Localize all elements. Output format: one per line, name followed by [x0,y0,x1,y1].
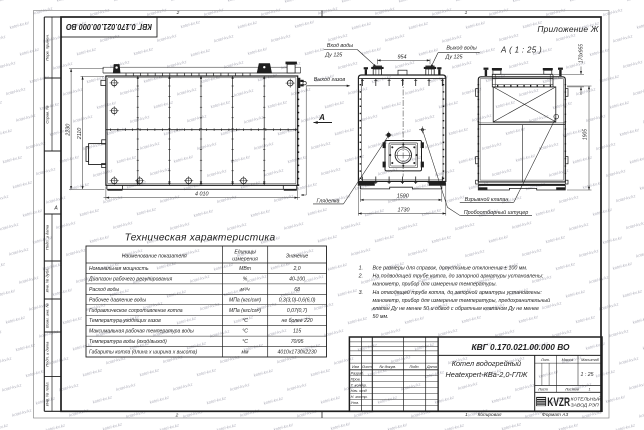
svg-text:kotel-kv.kz: kotel-kv.kz [575,86,596,96]
svg-text:kotel-kv.kz: kotel-kv.kz [545,234,566,244]
svg-text:kotel-kv.kz: kotel-kv.kz [612,33,633,43]
svg-text:kotel-kv.kz: kotel-kv.kz [407,247,428,257]
svg-text:измерения: измерения [232,257,258,263]
svg-text:kotel-kv.kz: kotel-kv.kz [441,34,462,44]
svg-text:kotel-kv.kz: kotel-kv.kz [612,261,633,271]
svg-text:1 : 25: 1 : 25 [581,372,594,378]
svg-text:kotel-kv.kz: kotel-kv.kz [341,0,362,4]
svg-text:kotel-kv.kz: kotel-kv.kz [189,273,210,283]
svg-text:kotel-kv.kz: kotel-kv.kz [45,422,66,430]
svg-text:°С: °С [242,318,248,324]
svg-text:kotel-kv.kz: kotel-kv.kz [0,0,20,2]
svg-text:kotel-kv.kz: kotel-kv.kz [585,341,606,351]
svg-text:kotel-kv.kz: kotel-kv.kz [0,127,13,137]
svg-text:kotel-kv.kz: kotel-kv.kz [52,287,73,297]
svg-text:kotel-kv.kz: kotel-kv.kz [172,381,193,391]
svg-text:kotel-kv.kz: kotel-kv.kz [491,394,512,404]
svg-text:kotel-kv.kz: kotel-kv.kz [139,140,160,150]
svg-text:kotel-kv.kz: kotel-kv.kz [629,154,644,164]
svg-text:kotel-kv.kz: kotel-kv.kz [209,328,230,338]
svg-text:kotel-kv.kz: kotel-kv.kz [605,394,626,404]
svg-text:Номинальная мощность: Номинальная мощность [89,266,149,272]
svg-text:kotel-kv.kz: kotel-kv.kz [602,235,623,245]
svg-text:Утв.: Утв. [351,401,360,405]
svg-text:kotel-kv.kz: kotel-kv.kz [454,221,475,231]
svg-text:kotel-kv.kz: kotel-kv.kz [163,126,184,136]
svg-text:1: 1 [465,10,468,16]
svg-text:Нач. отд: Нач. отд [351,389,367,393]
svg-text:kotel-kv.kz: kotel-kv.kz [501,421,522,430]
svg-text:kotel-kv.kz: kotel-kv.kz [589,47,610,57]
svg-text:Выход газов: Выход газов [314,77,346,83]
svg-text:Подп. и дата: Подп. и дата [45,341,50,367]
svg-text:kotel-kv.kz: kotel-kv.kz [495,99,516,109]
svg-text:kotel-kv.kz: kotel-kv.kz [92,168,113,178]
svg-text:Гляделка: Гляделка [317,198,340,204]
svg-text:kotel-kv.kz: kotel-kv.kz [0,355,13,365]
svg-text:Дата: Дата [426,365,437,369]
svg-text:kotel-kv.kz: kotel-kv.kz [437,327,458,337]
svg-text:МПа (кгс/см²): МПа (кгс/см²) [229,297,261,303]
svg-text:kotel-kv.kz: kotel-kv.kz [575,314,596,324]
svg-text:Габариты котла (длина х ширина: Габариты котла (длина х ширина х высота) [89,350,197,356]
svg-text:kotel-kv.kz: kotel-kv.kz [0,34,7,44]
svg-text:kotel-kv.kz: kotel-kv.kz [327,32,348,42]
svg-text:°С: °С [242,329,248,335]
svg-text:МПа (кгс/см²): МПа (кгс/см²) [229,308,261,314]
svg-text:kotel-kv.kz: kotel-kv.kz [511,220,532,230]
svg-text:kotel-kv.kz: kotel-kv.kz [92,394,113,404]
svg-text:kotel-kv.kz: kotel-kv.kz [639,181,644,191]
svg-text:kotel-kv.kz: kotel-kv.kz [99,33,120,43]
svg-text:kotel-kv.kz: kotel-kv.kz [337,287,358,297]
svg-text:kotel-kv.kz: kotel-kv.kz [599,73,620,83]
svg-text:Максимальная рабочая температу: Максимальная рабочая температура воды [89,329,194,335]
svg-text:kotel-kv.kz: kotel-kv.kz [545,7,566,17]
svg-text:kotel-kv.kz: kotel-kv.kz [146,7,167,17]
svg-text:Т. контр.: Т. контр. [351,383,367,387]
svg-text:Листов: Листов [564,388,579,392]
svg-text:1590: 1590 [397,194,409,200]
svg-text:Перв. примен.: Перв. примен. [45,34,50,61]
svg-text:1730: 1730 [398,207,410,213]
svg-text:Н. контр.: Н. контр. [351,395,368,399]
svg-text:kotel-kv.kz: kotel-kv.kz [250,208,271,218]
svg-text:kotel-kv.kz: kotel-kv.kz [414,113,435,123]
svg-text:kotel-kv.kz: kotel-kv.kz [310,140,331,150]
svg-text:kotel-kv.kz: kotel-kv.kz [176,86,197,96]
svg-text:kotel-kv.kz: kotel-kv.kz [418,47,439,57]
svg-text:kotel-kv.kz: kotel-kv.kz [176,315,197,325]
svg-text:kotel-kv.kz: kotel-kv.kz [39,101,60,111]
svg-text:Расход воды: Расход воды [89,287,119,293]
svg-text:kotel-kv.kz: kotel-kv.kz [156,260,177,270]
svg-text:kotel-kv.kz: kotel-kv.kz [193,208,214,218]
svg-text:kotel-kv.kz: kotel-kv.kz [226,221,247,231]
svg-text:мм: мм [242,350,249,356]
svg-text:kotel-kv.kz: kotel-kv.kz [22,208,43,218]
svg-text:kotel-kv.kz: kotel-kv.kz [284,0,305,4]
svg-text:kotel-kv.kz: kotel-kv.kz [327,262,348,272]
svg-text:kotel-kv.kz: kotel-kv.kz [62,315,83,325]
svg-text:kotel-kv.kz: kotel-kv.kz [408,20,429,30]
svg-text:kotel-kv.kz: kotel-kv.kz [350,247,371,257]
svg-text:Лит.: Лит. [540,358,550,362]
svg-text:kotel-kv.kz: kotel-kv.kz [143,74,164,84]
svg-text:kotel-kv.kz: kotel-kv.kz [186,113,207,123]
svg-text:Котел водогрейный: Котел водогрейный [452,359,521,368]
svg-text:kotel-kv.kz: kotel-kv.kz [0,422,9,430]
svg-text:kotel-kv.kz: kotel-kv.kz [387,422,408,430]
svg-text:kotel-kv.kz: kotel-kv.kz [12,179,33,189]
svg-text:kotel-kv.kz: kotel-kv.kz [243,114,264,124]
svg-text:kotel-kv.kz: kotel-kv.kz [397,221,418,231]
svg-text:kotel-kv.kz: kotel-kv.kz [361,46,382,56]
svg-text:Выход воды: Выход воды [446,46,476,52]
svg-text:kotel-kv.kz: kotel-kv.kz [471,112,492,122]
svg-text:kotel-kv.kz: kotel-kv.kz [115,382,136,392]
svg-text:Гидравлическое сопротивление к: Гидравлическое сопротивление котла [89,308,183,314]
svg-text:КОТЕЛЬНЫЙ: КОТЕЛЬНЫЙ [571,394,602,402]
svg-text:kotel-kv.kz: kotel-kv.kz [548,167,569,177]
svg-text:kotel-kv.kz: kotel-kv.kz [276,354,297,364]
svg-text:70/95: 70/95 [291,339,304,345]
svg-text:kotel-kv.kz: kotel-kv.kz [512,0,533,3]
svg-text:1905: 1905 [583,129,589,140]
svg-text:kotel-kv.kz: kotel-kv.kz [0,99,3,109]
svg-text:kotel-kv.kz: kotel-kv.kz [76,46,97,56]
svg-text:kotel-kv.kz: kotel-kv.kz [257,72,278,82]
svg-text:kotel-kv.kz: kotel-kv.kz [25,368,46,378]
svg-text:kotel-kv.kz: kotel-kv.kz [263,395,284,405]
svg-text:kotel-kv.kz: kotel-kv.kz [518,87,539,97]
svg-text:kotel-kv.kz: kotel-kv.kz [72,113,93,123]
svg-text:kotel-kv.kz: kotel-kv.kz [595,141,616,151]
svg-text:kotel-kv.kz: kotel-kv.kz [273,193,294,203]
svg-text:kotel-kv.kz: kotel-kv.kz [294,19,315,29]
svg-text:kotel-kv.kz: kotel-kv.kz [438,99,459,109]
svg-text:kotel-kv.kz: kotel-kv.kz [622,288,643,298]
svg-text:kotel-kv.kz: kotel-kv.kz [297,181,318,191]
svg-text:kotel-kv.kz: kotel-kv.kz [638,409,644,419]
svg-text:Формат А3: Формат А3 [542,412,569,418]
svg-text:kotel-kv.kz: kotel-kv.kz [488,7,509,17]
svg-text:Масштаб: Масштаб [581,358,600,362]
svg-text:kotel-kv.kz: kotel-kv.kz [307,206,328,216]
svg-text:kotel-kv.kz: kotel-kv.kz [595,368,616,378]
svg-text:115: 115 [293,329,301,335]
svg-text:kotel-kv.kz: kotel-kv.kz [246,273,267,283]
svg-text:kotel-kv.kz: kotel-kv.kz [333,355,354,365]
svg-text:2: 2 [176,10,180,16]
svg-text:kotel-kv.kz: kotel-kv.kz [334,126,355,136]
svg-text:манометр, прибор для измерения: манометр, прибор для измерения температу… [373,282,497,288]
svg-text:kotel-kv.kz: kotel-kv.kz [552,100,573,110]
svg-text:kotel-kv.kz: kotel-kv.kz [196,141,217,151]
svg-text:kotel-kv.kz: kotel-kv.kz [625,220,644,230]
svg-text:kotel-kv.kz: kotel-kv.kz [29,74,50,84]
svg-text:KVZR: KVZR [547,396,570,409]
svg-text:kotel-kv.kz: kotel-kv.kz [267,99,288,109]
svg-text:kotel-kv.kz: kotel-kv.kz [239,408,260,418]
svg-text:kotel-kv.kz: kotel-kv.kz [0,288,16,298]
svg-text:kotel-kv.kz: kotel-kv.kz [498,32,519,42]
svg-text:kotel-kv.kz: kotel-kv.kz [431,6,452,16]
svg-text:kotel-kv.kz: kotel-kv.kz [374,233,395,243]
svg-text:1: 1 [588,388,590,392]
svg-text:40-100: 40-100 [289,276,305,282]
svg-text:kotel-kv.kz: kotel-kv.kz [353,408,374,418]
svg-text:kotel-kv.kz: kotel-kv.kz [18,275,39,285]
svg-text:68: 68 [294,287,300,293]
svg-text:kotel-kv.kz: kotel-kv.kz [330,421,351,430]
svg-text:kotel-kv.kz: kotel-kv.kz [455,0,476,2]
svg-text:Взрывной клапан: Взрывной клапан [465,196,509,203]
svg-text:kotel-kv.kz: kotel-kv.kz [240,180,261,190]
svg-text:kotel-kv.kz: kotel-kv.kz [25,140,46,150]
svg-text:kotel-kv.kz: kotel-kv.kz [230,154,251,164]
svg-text:kotel-kv.kz: kotel-kv.kz [558,194,579,204]
svg-text:kotel-kv.kz: kotel-kv.kz [2,154,23,164]
svg-text:kotel-kv.kz: kotel-kv.kz [404,86,425,96]
svg-text:kotel-kv.kz: kotel-kv.kz [458,154,479,164]
svg-text:kotel-kv.kz: kotel-kv.kz [632,86,644,96]
svg-text:1.: 1. [359,265,363,271]
svg-text:kotel-kv.kz: kotel-kv.kz [116,154,137,164]
svg-text:kotel-kv.kz: kotel-kv.kz [569,0,590,3]
svg-text:kotel-kv.kz: kotel-kv.kz [283,221,304,231]
svg-text:Пробоотборный штуцер: Пробоотборный штуцер [464,209,529,216]
svg-text:kotel-kv.kz: kotel-kv.kz [173,154,194,164]
svg-text:kotel-kv.kz: kotel-kv.kz [206,395,227,405]
svg-text:МВт: МВт [239,266,251,272]
svg-text:kotel-kv.kz: kotel-kv.kz [636,20,644,30]
svg-text:4 010: 4 010 [195,192,209,198]
svg-text:kotel-kv.kz: kotel-kv.kz [196,367,217,377]
svg-text:kotel-kv.kz: kotel-kv.kz [170,0,191,2]
svg-text:kotel-kv.kz: kotel-kv.kz [568,221,589,231]
svg-text:Все размеры для справок, допус: Все размеры для справок, допустимые откл… [373,265,528,271]
svg-text:kotel-kv.kz: kotel-kv.kz [632,315,644,325]
svg-text:kotel-kv.kz: kotel-kv.kz [35,166,56,176]
svg-text:Справ. №: Справ. № [45,105,50,124]
svg-text:Лист: Лист [537,388,548,392]
svg-text:kotel-kv.kz: kotel-kv.kz [260,7,281,17]
svg-text:kotel-kv.kz: kotel-kv.kz [206,168,227,178]
svg-text:Подп. и дата: Подп. и дата [45,224,50,250]
svg-text:kotel-kv.kz: kotel-kv.kz [572,154,593,164]
svg-text:%: % [243,276,248,282]
svg-text:Техническая характеристика: Техническая характеристика [125,233,276,244]
svg-text:kotel-kv.kz: kotel-kv.kz [465,20,486,30]
svg-text:954: 954 [398,55,407,61]
svg-text:kotel-kv.kz: kotel-kv.kz [313,301,334,311]
svg-text:kotel-kv.kz: kotel-kv.kz [381,100,402,110]
svg-text:kotel-kv.kz: kotel-kv.kz [216,194,237,204]
svg-text:kotel-kv.kz: kotel-kv.kz [588,274,609,284]
svg-text:kotel-kv.kz: kotel-kv.kz [129,114,150,124]
svg-text:kotel-kv.kz: kotel-kv.kz [619,127,640,137]
svg-text:kotel-kv.kz: kotel-kv.kz [113,0,134,2]
svg-text:kotel-kv.kz: kotel-kv.kz [410,409,431,419]
svg-text:kotel-kv.kz: kotel-kv.kz [286,382,307,392]
svg-text:2110: 2110 [77,128,83,141]
svg-text:kotel-kv.kz: kotel-kv.kz [320,394,341,404]
svg-text:kotel-kv.kz: kotel-kv.kz [347,315,368,325]
svg-text:kotel-kv.kz: kotel-kv.kz [464,248,485,258]
svg-text:kotel-kv.kz: kotel-kv.kz [394,59,415,69]
svg-text:kotel-kv.kz: kotel-kv.kz [296,408,317,418]
svg-text:kotel-kv.kz: kotel-kv.kz [628,380,644,390]
svg-text:kotel-kv.kz: kotel-kv.kz [304,46,325,56]
svg-text:2: 2 [175,413,179,419]
svg-text:0,3(3,0)-0,6(6,0): 0,3(3,0)-0,6(6,0) [279,297,316,303]
svg-text:Значение: Значение [286,254,309,260]
svg-text:kotel-kv.kz: kotel-kv.kz [1,382,22,392]
svg-text:kotel-kv.kz: kotel-kv.kz [270,261,291,271]
svg-text:kotel-kv.kz: kotel-kv.kz [263,167,284,177]
svg-text:ЗАВОД РЭП: ЗАВОД РЭП [571,402,600,408]
svg-text:kotel-kv.kz: kotel-kv.kz [180,19,201,29]
svg-text:2230: 2230 [65,124,71,137]
svg-text:А: А [53,206,58,212]
svg-text:На отводящей трубе котла, до з: На отводящей трубе котла, до запорной ар… [373,289,543,296]
svg-text:Разраб.: Разраб. [351,371,365,375]
svg-text:kotel-kv.kz: kotel-kv.kz [199,301,220,311]
svg-text:Масса: Масса [562,358,573,362]
svg-text:kotel-kv.kz: kotel-kv.kz [156,33,177,43]
svg-text:Приложение Ж: Приложение Ж [537,24,599,34]
svg-text:Подп.: Подп. [409,365,419,369]
svg-text:kotel-kv.kz: kotel-kv.kz [102,421,123,430]
svg-text:kotel-kv.kz: kotel-kv.kz [558,422,579,430]
svg-text:kotel-kv.kz: kotel-kv.kz [364,207,385,217]
svg-text:Копировал: Копировал [478,412,502,418]
svg-text:kotel-kv.kz: kotel-kv.kz [55,220,76,230]
svg-text:kotel-kv.kz: kotel-kv.kz [555,261,576,271]
svg-text:kotel-kv.kz: kotel-kv.kz [317,233,338,243]
svg-text:kotel-kv.kz: kotel-kv.kz [79,207,100,217]
svg-text:kotel-kv.kz: kotel-kv.kz [69,181,90,191]
svg-text:0,07(0,7): 0,07(0,7) [287,308,308,314]
svg-text:kotel-kv.kz: kotel-kv.kz [32,235,53,245]
svg-text:kotel-kv.kz: kotel-kv.kz [136,206,157,216]
svg-text:kotel-kv.kz: kotel-kv.kz [374,6,395,16]
svg-text:kotel-kv.kz: kotel-kv.kz [380,327,401,337]
svg-text:kotel-kv.kz: kotel-kv.kz [0,261,6,271]
svg-text:kotel-kv.kz: kotel-kv.kz [337,60,358,70]
svg-text:kotel-kv.kz: kotel-kv.kz [434,167,455,177]
svg-text:2.: 2. [358,273,363,279]
svg-text:kotel-kv.kz: kotel-kv.kz [578,248,599,258]
svg-text:kotel-kv.kz: kotel-kv.kz [203,7,224,17]
svg-text:kotel-kv.kz: kotel-kv.kz [608,328,629,338]
svg-text:kotel-kv.kz: kotel-kv.kz [615,422,636,430]
svg-text:kotel-kv.kz: kotel-kv.kz [592,207,613,217]
svg-text:КВГ 0.170.021.00.000 ВО: КВГ 0.170.021.00.000 ВО [65,22,152,31]
svg-text:kotel-kv.kz: kotel-kv.kz [229,382,250,392]
svg-text:kotel-kv.kz: kotel-kv.kz [391,127,412,137]
svg-text:kotel-kv.kz: kotel-kv.kz [233,87,254,97]
svg-text:kotel-kv.kz: kotel-kv.kz [166,59,187,69]
svg-text:kotel-kv.kz: kotel-kv.kz [139,367,160,377]
svg-text:kotel-kv.kz: kotel-kv.kz [518,314,539,324]
svg-text:°С: °С [242,339,248,345]
svg-text:1: 1 [465,412,468,418]
svg-text:kotel-kv.kz: kotel-kv.kz [125,409,146,419]
svg-text:Пров.: Пров. [351,377,361,381]
svg-text:kotel-kv.kz: kotel-kv.kz [52,61,73,71]
svg-text:kotel-kv.kz: kotel-kv.kz [112,220,133,230]
svg-text:kotel-kv.kz: kotel-kv.kz [59,154,80,164]
svg-text:На подводящей трубе котла, до: На подводящей трубе котла, до запорной а… [373,272,544,279]
svg-text:kotel-kv.kz: kotel-kv.kz [431,234,452,244]
svg-text:№ докум.: № докум. [379,365,396,369]
svg-text:kotel-kv.kz: kotel-kv.kz [622,59,643,69]
svg-text:kotel-kv.kz: kotel-kv.kz [169,221,190,231]
svg-text:kotel-kv.kz: kotel-kv.kz [618,355,639,365]
svg-text:kotel-kv.kz: kotel-kv.kz [0,193,10,203]
svg-text:kotel-kv.kz: kotel-kv.kz [5,86,26,96]
svg-text:kotel-kv.kz: kotel-kv.kz [68,407,89,417]
svg-text:А: А [318,113,325,122]
svg-text:kotel-kv.kz: kotel-kv.kz [565,288,586,298]
svg-text:kotel-kv.kz: kotel-kv.kz [9,20,30,30]
svg-text:Инв. № дубл.: Инв. № дубл. [45,268,50,293]
svg-text:Диапазон рабочего регулировани: Диапазон рабочего регулирования [88,276,172,282]
svg-text:kotel-kv.kz: kotel-kv.kz [153,99,174,109]
svg-text:kotel-kv.kz: kotel-kv.kz [213,33,234,43]
svg-text:kotel-kv.kz: kotel-kv.kz [159,194,180,204]
svg-text:Лист: Лист [361,365,372,369]
svg-text:Рабочее давление воды: Рабочее давление воды [89,297,146,303]
svg-text:kotel-kv.kz: kotel-kv.kz [109,59,130,69]
svg-text:КВГ 0.170.021.00.000 ВО: КВГ 0.170.021.00.000 ВО [472,342,570,352]
svg-text:kotel-kv.kz: kotel-kv.kz [585,113,606,123]
svg-text:kotel-kv.kz: kotel-kv.kz [223,59,244,69]
svg-text:kotel-kv.kz: kotel-kv.kz [0,60,17,70]
svg-text:kotel-kv.kz: kotel-kv.kz [398,0,419,3]
svg-text:Взам. инв. №: Взам. инв. № [45,302,50,327]
svg-text:kotel-kv.kz: kotel-kv.kz [521,247,542,257]
svg-text:kotel-kv.kz: kotel-kv.kz [56,0,77,3]
svg-text:kotel-kv.kz: kotel-kv.kz [451,59,472,69]
svg-text:kotel-kv.kz: kotel-kv.kz [340,220,361,230]
svg-text:kotel-kv.kz: kotel-kv.kz [303,273,324,283]
svg-text:kotel-kv.kz: kotel-kv.kz [89,7,110,17]
svg-text:kotel-kv.kz: kotel-kv.kz [310,367,331,377]
svg-text:kotel-kv.kz: kotel-kv.kz [626,0,644,2]
svg-text:kotel-kv.kz: kotel-kv.kz [488,234,509,244]
svg-text:kotel-kv.kz: kotel-kv.kz [635,248,644,258]
svg-text:kotel-kv.kz: kotel-kv.kz [220,126,241,136]
svg-text:kotel-kv.kz: kotel-kv.kz [133,46,154,56]
svg-text:kotel-kv.kz: kotel-kv.kz [0,329,3,339]
svg-text:kotel-kv.kz: kotel-kv.kz [384,33,405,43]
svg-text:kotel-kv.kz: kotel-kv.kz [89,234,110,244]
svg-text:kotel-kv.kz: kotel-kv.kz [11,407,32,417]
svg-text:kotel-kv.kz: kotel-kv.kz [508,59,529,69]
svg-text:kotel-kv.kz: kotel-kv.kz [602,7,623,17]
svg-text:kotel-kv.kz: kotel-kv.kz [166,288,187,298]
svg-text:kotel-kv.kz: kotel-kv.kz [45,195,66,205]
svg-text:А ( 1 : 25 ): А ( 1 : 25 ) [500,46,542,55]
svg-text:kotel-kv.kz: kotel-kv.kz [404,315,425,325]
svg-text:Heatexpert-КВа-2,0-ГЛЖ: Heatexpert-КВа-2,0-ГЛЖ [446,370,529,379]
svg-text:4010х1730х2230: 4010х1730х2230 [278,350,317,356]
svg-text:kotel-kv.kz: kotel-kv.kz [19,46,40,56]
svg-text:kotel-kv.kz: kotel-kv.kz [515,153,536,163]
